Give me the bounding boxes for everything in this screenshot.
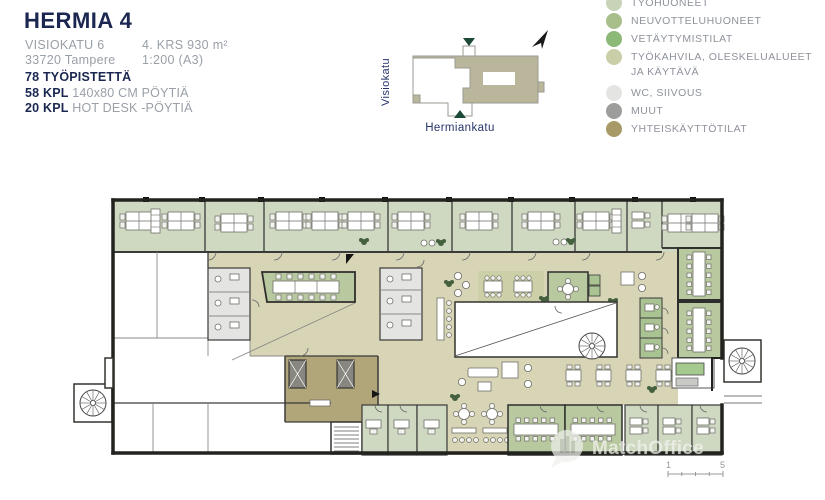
spiral-stair-atrium bbox=[579, 333, 605, 359]
meeting-room-right-1 bbox=[678, 248, 722, 300]
meeting-room-small-center bbox=[548, 272, 588, 306]
floor-plan-drawing: 1 5 bbox=[0, 0, 825, 500]
atrium-void bbox=[455, 302, 617, 359]
spiral-stair-southwest bbox=[74, 384, 112, 422]
corridor bbox=[208, 252, 678, 270]
scale-start-label: 1 bbox=[666, 460, 671, 470]
meeting-room-right-2 bbox=[678, 302, 722, 358]
rest-room bbox=[672, 358, 714, 388]
spiral-stair-east bbox=[724, 340, 762, 403]
floorplan-page: HERMIA 4 VISIOKATU 6 33720 Tampere 4. KR… bbox=[0, 0, 825, 500]
stairwell-center bbox=[331, 422, 362, 454]
meeting-room-bottom-1 bbox=[508, 405, 565, 455]
scale-end-label: 5 bbox=[720, 460, 725, 470]
wc-block-center bbox=[380, 268, 422, 340]
meeting-room-bottom-2 bbox=[565, 405, 622, 455]
phone-booth-seats bbox=[589, 275, 600, 285]
sofa bbox=[468, 368, 498, 377]
bottom-rooms bbox=[362, 403, 722, 455]
meeting-room-long bbox=[262, 272, 355, 302]
wc-block-left bbox=[208, 268, 250, 340]
scale-bar: 1 5 bbox=[666, 460, 725, 477]
